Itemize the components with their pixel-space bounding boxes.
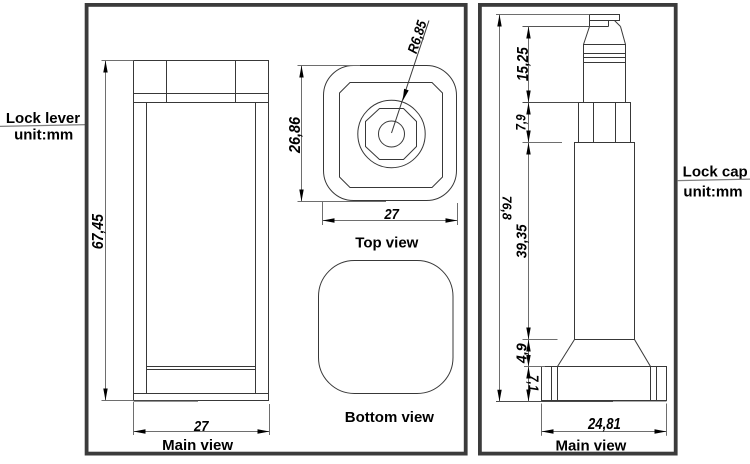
svg-text:7,1: 7,1 [525,375,542,392]
svg-text:4,9: 4,9 [514,342,530,364]
svg-text:Main view: Main view [162,437,233,454]
svg-text:27: 27 [383,205,400,222]
svg-text:7,9: 7,9 [514,114,529,130]
svg-text:27: 27 [193,417,210,434]
svg-text:Bottom view: Bottom view [345,409,435,426]
svg-text:Lock cap: Lock cap [683,163,748,180]
svg-text:unit:mm: unit:mm [683,183,742,200]
svg-text:15,25: 15,25 [515,47,532,82]
svg-text:Top view: Top view [355,235,418,252]
svg-text:26,86: 26,86 [286,116,304,153]
svg-text:39,35: 39,35 [514,223,531,258]
svg-text:67,45: 67,45 [89,213,107,249]
svg-text:unit:mm: unit:mm [14,127,73,144]
svg-text:76,8: 76,8 [499,196,513,221]
svg-text:Main view: Main view [555,437,626,454]
svg-text:24,81: 24,81 [587,416,621,433]
